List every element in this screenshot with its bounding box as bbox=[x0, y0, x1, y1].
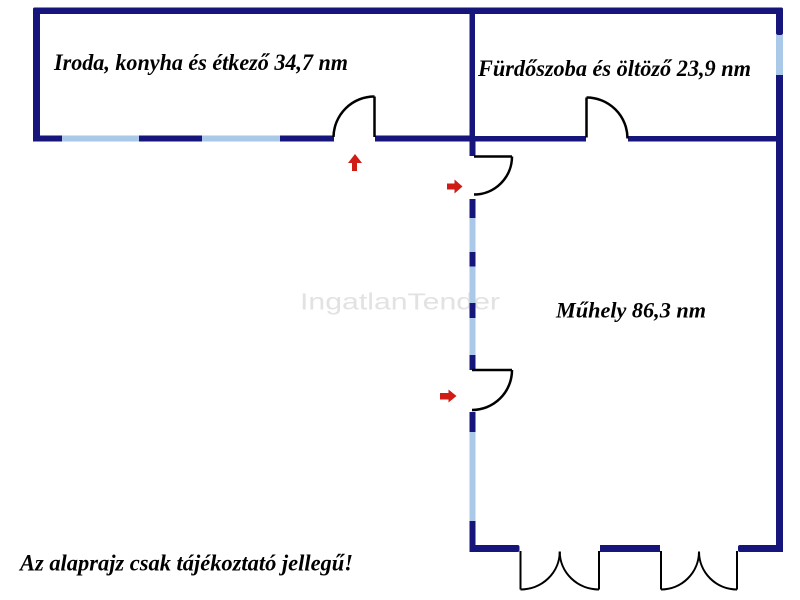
svg-text:Az alaprajz csak tájékoztató j: Az alaprajz csak tájékoztató jellegű! bbox=[18, 551, 353, 577]
svg-text:Fürdőszoba és öltöző 23,9 nm: Fürdőszoba és öltöző 23,9 nm bbox=[477, 56, 751, 81]
svg-text:Műhely 86,3 nm: Műhely 86,3 nm bbox=[555, 298, 706, 323]
svg-text:Iroda, konyha és étkező 34,7 n: Iroda, konyha és étkező 34,7 nm bbox=[53, 50, 348, 76]
